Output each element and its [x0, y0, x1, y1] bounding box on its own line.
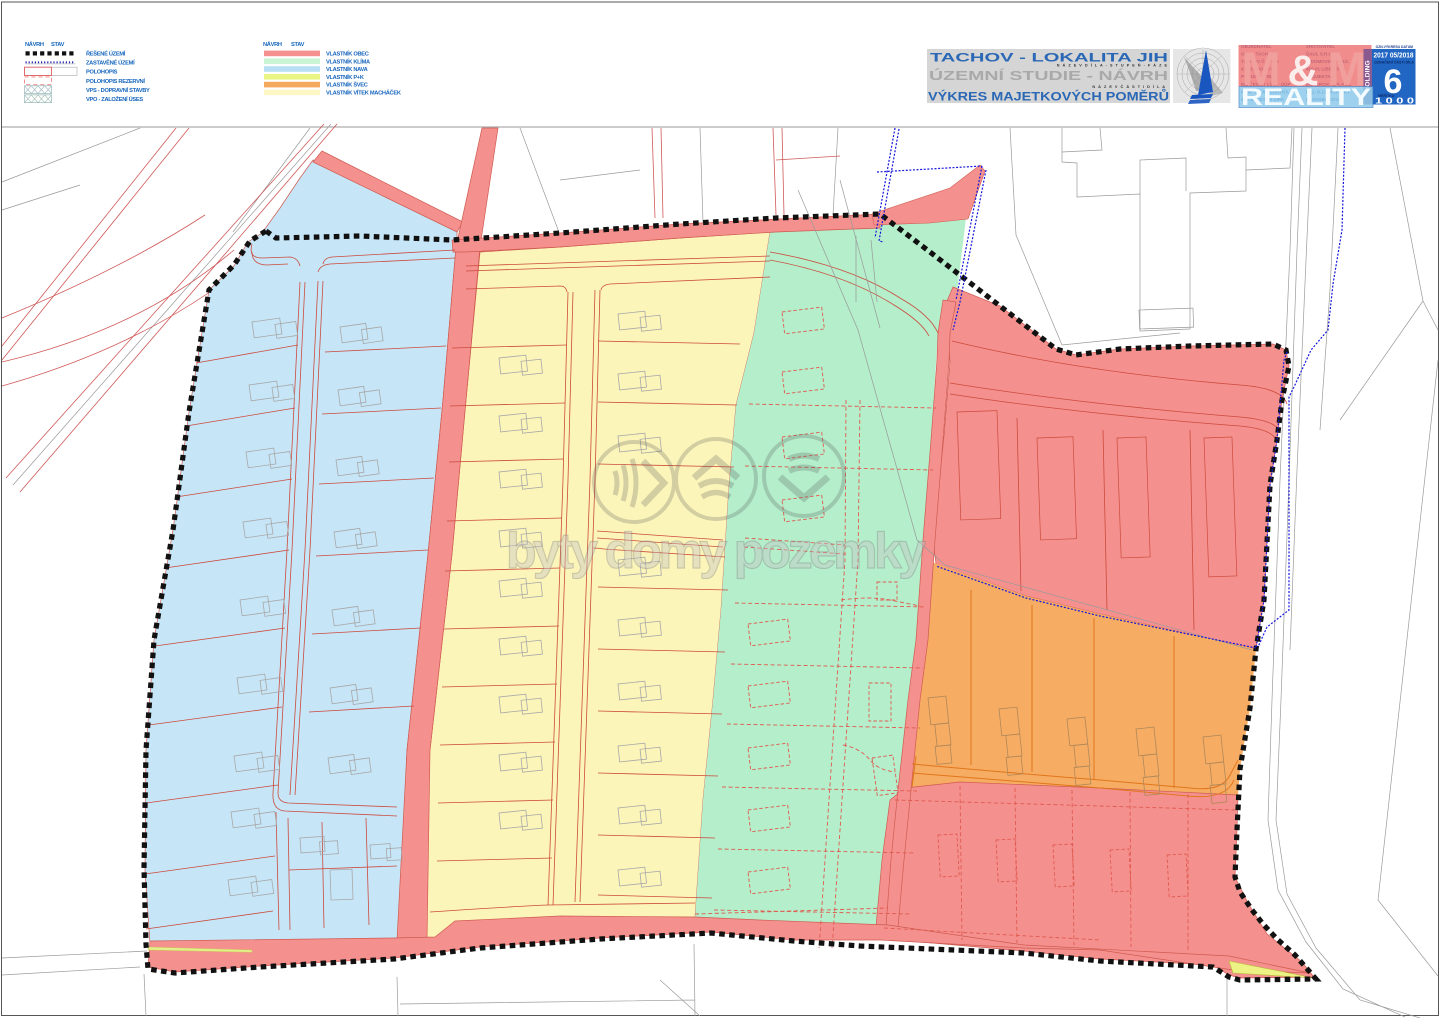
svg-text:VLASTNÍK OBEC: VLASTNÍK OBEC [326, 50, 369, 58]
svg-text:VLASTNÍK KLÍMA: VLASTNÍK KLÍMA [326, 57, 370, 65]
svg-text:VLASTNÍK ŠVEC: VLASTNÍK ŠVEC [326, 81, 368, 89]
svg-text:VLASTNÍK VÍTEK MACHÁČEK: VLASTNÍK VÍTEK MACHÁČEK [326, 89, 402, 97]
svg-text:VLASTNÍK P+K: VLASTNÍK P+K [326, 73, 365, 81]
svg-text:N Á Z E V D Í L A - S T: N Á Z E V D Í L A - S T U P E Ň - F Á Z … [1057, 62, 1168, 67]
svg-text:OZN.VÝKRESU DATUM: OZN.VÝKRESU DATUM [1376, 44, 1414, 49]
svg-text:byty domy pozemky: byty domy pozemky [506, 523, 926, 579]
svg-text:ÚZEMNÍ STUDIE - NÁVRH: ÚZEMNÍ STUDIE - NÁVRH [929, 68, 1168, 83]
svg-text:1 0 0 0: 1 0 0 0 [1375, 97, 1415, 106]
svg-text:NÁVRH: NÁVRH [25, 41, 44, 48]
svg-text:N Á Z E V Č Á S T I D Í L: N Á Z E V Č Á S T I D Í L A [1092, 84, 1166, 89]
svg-text:VLASTNÍK NAVA: VLASTNÍK NAVA [326, 65, 368, 73]
svg-text:ZASTAVĚNÉ ÚZEMÍ: ZASTAVĚNÉ ÚZEMÍ [86, 59, 135, 67]
svg-text:2017 05/2018: 2017 05/2018 [1374, 51, 1414, 60]
svg-text:POLOHOPIS: POLOHOPIS [86, 70, 118, 76]
svg-text:VÝKRES MAJETKOVÝCH POMĚRŮ: VÝKRES MAJETKOVÝCH POMĚRŮ [928, 88, 1169, 104]
svg-text:POLOHOPIS REZERVNÍ: POLOHOPIS REZERVNÍ [86, 77, 145, 85]
svg-text:ŘEŠENÉ ÚZEMÍ: ŘEŠENÉ ÚZEMÍ [86, 50, 126, 58]
svg-text:STAV: STAV [291, 42, 305, 48]
svg-text:VPO - ZALOŽENÍ ÚSES: VPO - ZALOŽENÍ ÚSES [86, 95, 143, 103]
svg-text:NÁVRH: NÁVRH [263, 41, 282, 48]
svg-text:STAV: STAV [51, 42, 65, 48]
svg-text:REALITY: REALITY [1241, 84, 1371, 111]
svg-text:VPS - DOPRAVNÍ STAVBY: VPS - DOPRAVNÍ STAVBY [86, 86, 150, 94]
